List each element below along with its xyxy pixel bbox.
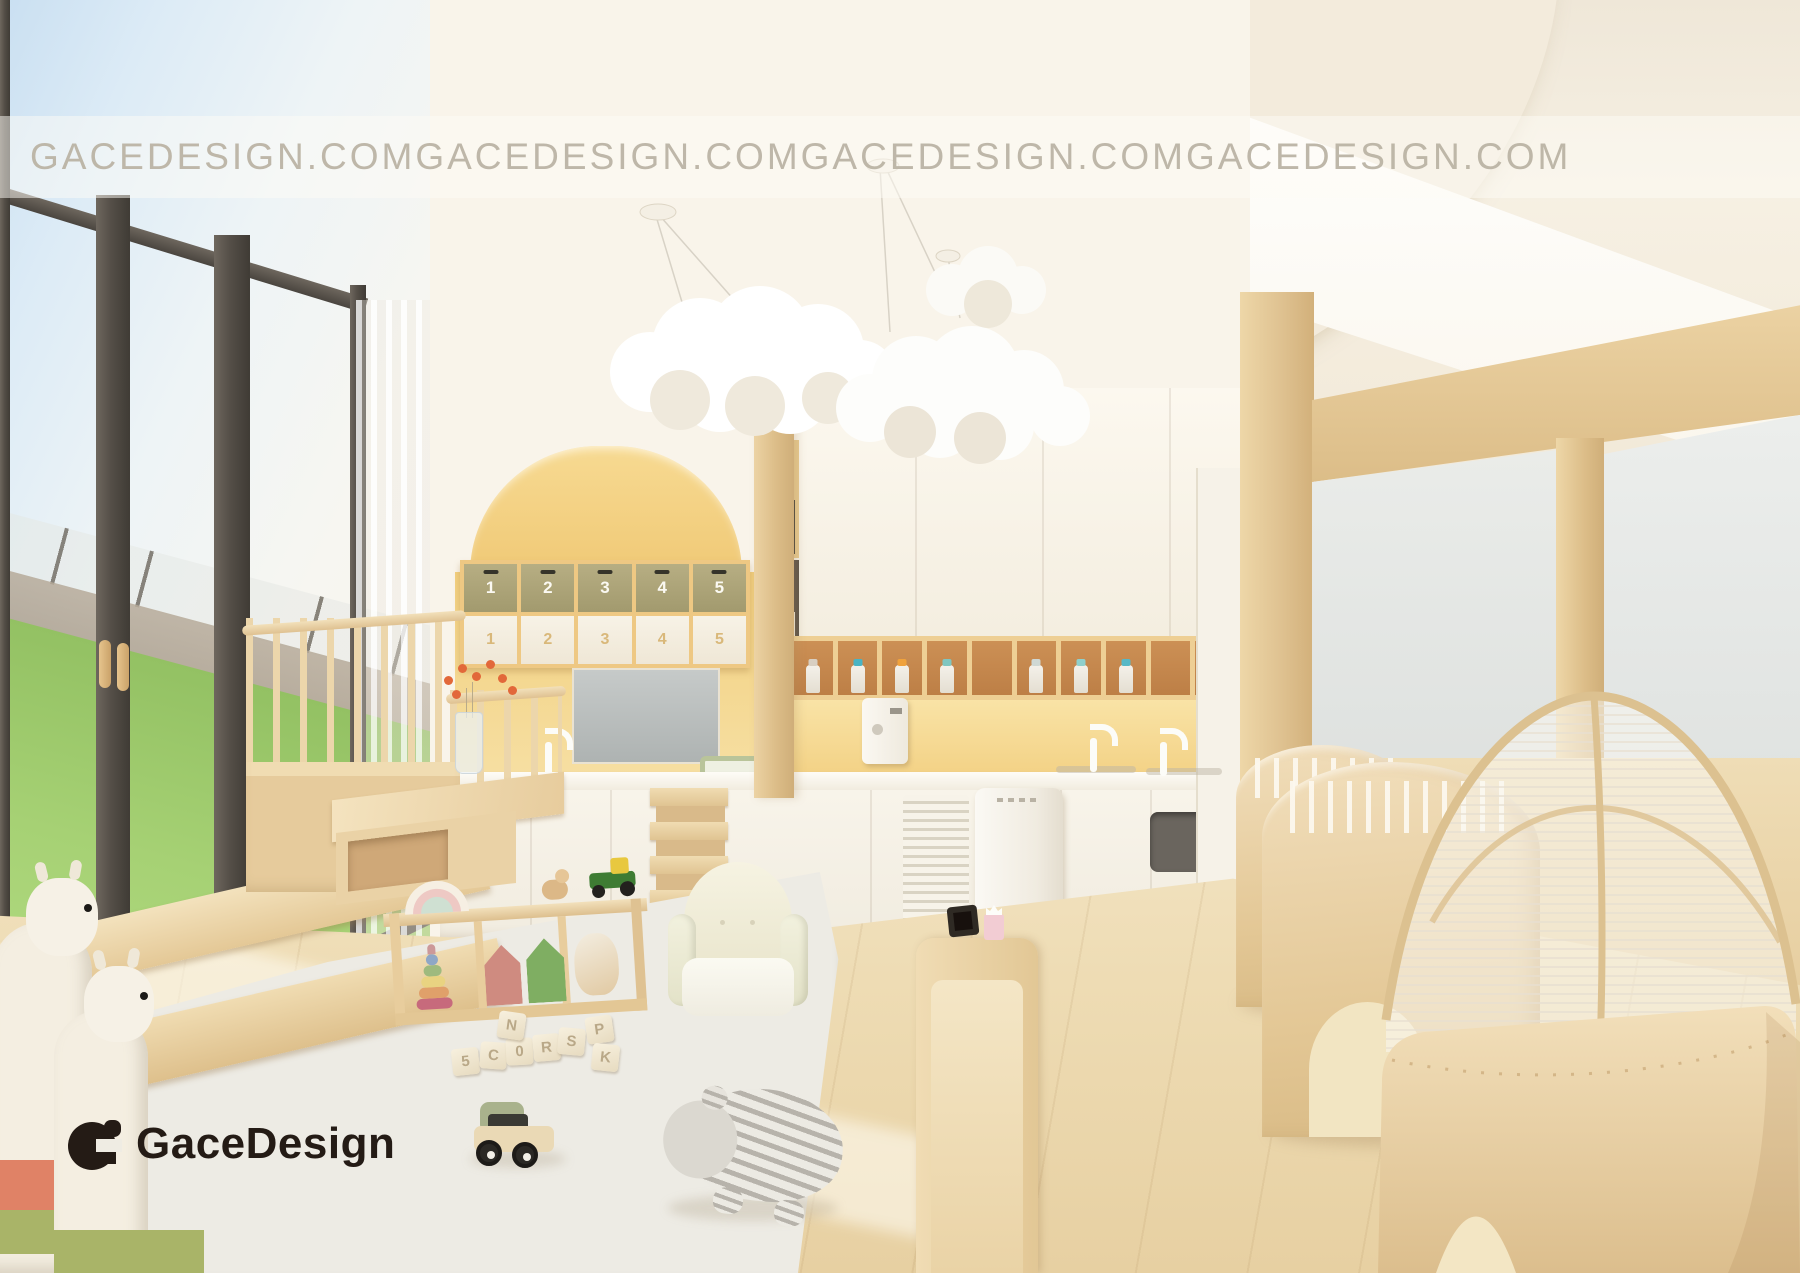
block-letter: 0 [515,1043,524,1060]
nursery-interior-render: 1 2 3 4 5 1 2 3 4 5 [0,0,1800,1273]
bottle-cap [942,659,951,666]
bottle-cell [1151,641,1191,695]
toy-chalkboard [947,905,980,938]
armchair-seat [682,958,794,1016]
block-letter: C [487,1047,499,1065]
baby-bottle [1119,665,1133,693]
glass-vase [455,712,483,774]
baby-bottle-shelf [788,636,1240,700]
watermark-text: GACEDESIGN.COM [415,136,800,178]
sink [1146,768,1222,775]
box-number: 1 [486,631,495,649]
wooden-toy-car [474,1102,558,1164]
dispenser-screen [890,708,902,714]
step-riser [656,806,725,822]
letter-block: C [479,1041,508,1070]
wheel-hub [487,1151,495,1159]
upholstery-button [750,920,755,925]
block-letter: K [599,1048,612,1066]
storage-box: 2 [521,564,574,612]
bottle-cap [1121,659,1130,666]
storage-box: 3 [578,564,631,612]
plush-ear [92,949,108,971]
plush-foot [712,1186,745,1215]
logo-text: GaceDesign [136,1119,395,1169]
letter-block: K [591,1043,621,1073]
rainbow-stacker-toy [413,942,453,1010]
wheel-hub [523,1153,531,1161]
step-riser [656,840,725,856]
alpaca-plush [54,946,204,1273]
dispenser-button [872,724,883,735]
storage-shelf-bottom-row: 1 2 3 4 5 [464,616,746,664]
plush-ear [68,859,82,881]
toy-house [483,944,523,1006]
window-transom [0,186,368,313]
upholstery-button [720,920,725,925]
plush-ear [126,947,140,969]
bottle-cell [838,641,878,695]
plush-foot [773,1199,806,1228]
bottle-cap [853,659,862,666]
play-loft-railing [246,618,462,768]
faucet [1090,738,1097,772]
bottle-cap [898,659,907,666]
plush-head [84,966,154,1042]
plush-ear [34,861,50,883]
box-number: 4 [657,578,666,598]
bottle-cell [882,641,922,695]
watermark-text: GACEDESIGN.COM [801,136,1186,178]
box-number: 3 [601,631,610,649]
wall-dispenser [862,698,908,764]
cabinet-seam [870,790,872,938]
faucet [1160,742,1167,776]
orange-flower [458,664,467,673]
wooden-bench-table [916,938,1038,1273]
plush-head [26,878,98,956]
box-number: 2 [543,578,552,598]
block-letter: 5 [460,1053,470,1071]
baby-bottle [806,665,820,693]
baby-bottle [1029,665,1043,693]
storage-box: 5 [693,564,746,612]
fridge-controls [997,798,1041,802]
cabinet-seam [1169,388,1171,636]
plush-band [54,1230,204,1273]
railing-balusters [246,618,462,768]
cloud-pendant-lamps [560,150,1120,480]
car-wheel [476,1140,502,1166]
storage-box: 3 [578,616,631,664]
toy-shelf [389,890,648,1025]
canopy-crib [1372,612,1800,1273]
baby-bottle [895,665,909,693]
numbered-storage-shelf: 1 2 3 4 5 1 2 3 4 5 [460,560,750,668]
block-letter: N [505,1016,518,1034]
watermark-text: GACEDESIGN.COM [1186,136,1571,178]
box-number: 1 [486,578,495,598]
letter-block: S [557,1027,586,1056]
bottle-cell [972,641,1012,695]
door-handle [99,640,111,688]
letter-block: 5 [451,1047,481,1077]
crib-plywood-base [1378,1006,1800,1273]
orange-flower [472,672,481,681]
orange-flower [486,660,495,669]
bottle-cell [793,641,833,695]
box-number: 2 [543,631,552,649]
door-handle [117,643,129,691]
wooden-duck-toy [539,869,571,903]
plush-eye [140,992,148,1000]
letter-block: 0 [505,1037,533,1065]
watermark-text: GACEDESIGN.COM [30,136,415,178]
storage-shelf-top-row: 1 2 3 4 5 [464,564,746,612]
bottle-cell [927,641,967,695]
bench-opening [931,980,1023,1273]
orange-flower [444,676,453,685]
block-letter: P [593,1020,605,1038]
box-number: 3 [600,578,609,598]
bottle-cap [1032,659,1041,666]
bottle-cell [1061,641,1101,695]
watermark-row: GACEDESIGN.COM GACEDESIGN.COM GACEDESIGN… [30,116,1480,198]
letter-block: P [584,1014,614,1044]
orange-flower [508,686,517,695]
storage-box: 4 [636,616,689,664]
box-number: 5 [715,631,724,649]
canopy-mesh [1386,696,1796,1052]
step-tread [650,822,728,840]
bottle-cap [1077,659,1086,666]
storage-box: 1 [464,564,517,612]
bottle-cell [1017,641,1057,695]
letter-block: N [496,1010,526,1040]
plush-dog-toy [573,932,621,997]
brand-logo: GaceDesign [66,1116,395,1172]
storage-box: 4 [636,564,689,612]
toy-tractor [588,861,638,898]
block-letter: R [540,1039,552,1057]
storage-box: 5 [693,616,746,664]
orange-flower [498,674,507,683]
striped-plush-hippo [656,1079,849,1229]
bottle-cap [808,659,817,666]
box-number: 4 [658,631,667,649]
storage-box: 2 [521,616,574,664]
toy-crown-bottle [984,914,1004,940]
plush-eye [84,904,92,912]
bottle-cell [1106,641,1146,695]
orange-flower [452,690,461,699]
block-letter: S [566,1033,577,1051]
logo-icon [66,1116,122,1172]
kids-armchair [676,862,800,1024]
wall-mirror [572,668,720,764]
car-wheel [512,1142,538,1168]
baby-bottle [1074,665,1088,693]
box-number: 5 [715,578,724,598]
storage-box: 1 [464,616,517,664]
baby-bottle [851,665,865,693]
watermark-band: GACEDESIGN.COM GACEDESIGN.COM GACEDESIGN… [0,116,1800,198]
step-tread [650,788,728,806]
baby-bottle [940,665,954,693]
